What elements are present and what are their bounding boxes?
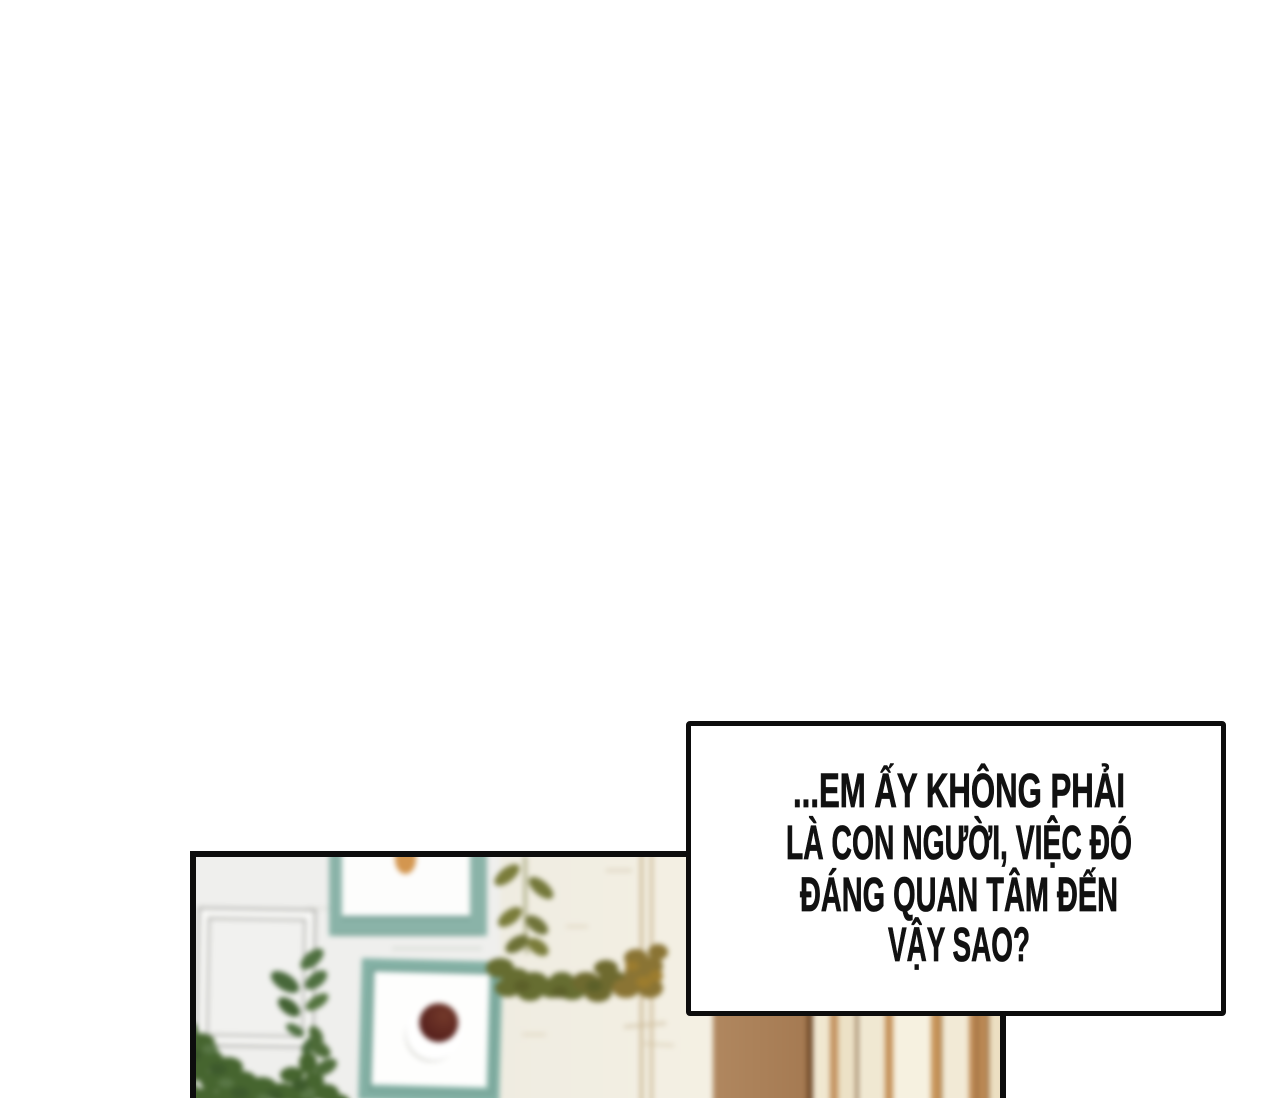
svg-text:ĐÁNG QUAN TÂM ĐẾN: ĐÁNG QUAN TÂM ĐẾN	[800, 867, 1118, 922]
svg-text:LÀ CON NGƯỜI, VIỆC ĐÓ: LÀ CON NGƯỜI, VIỆC ĐÓ	[786, 815, 1132, 870]
svg-text:...EM ẤY KHÔNG PHẢI: ...EM ẤY KHÔNG PHẢI	[793, 763, 1125, 818]
svg-text:VẬY SAO?: VẬY SAO?	[888, 917, 1030, 972]
